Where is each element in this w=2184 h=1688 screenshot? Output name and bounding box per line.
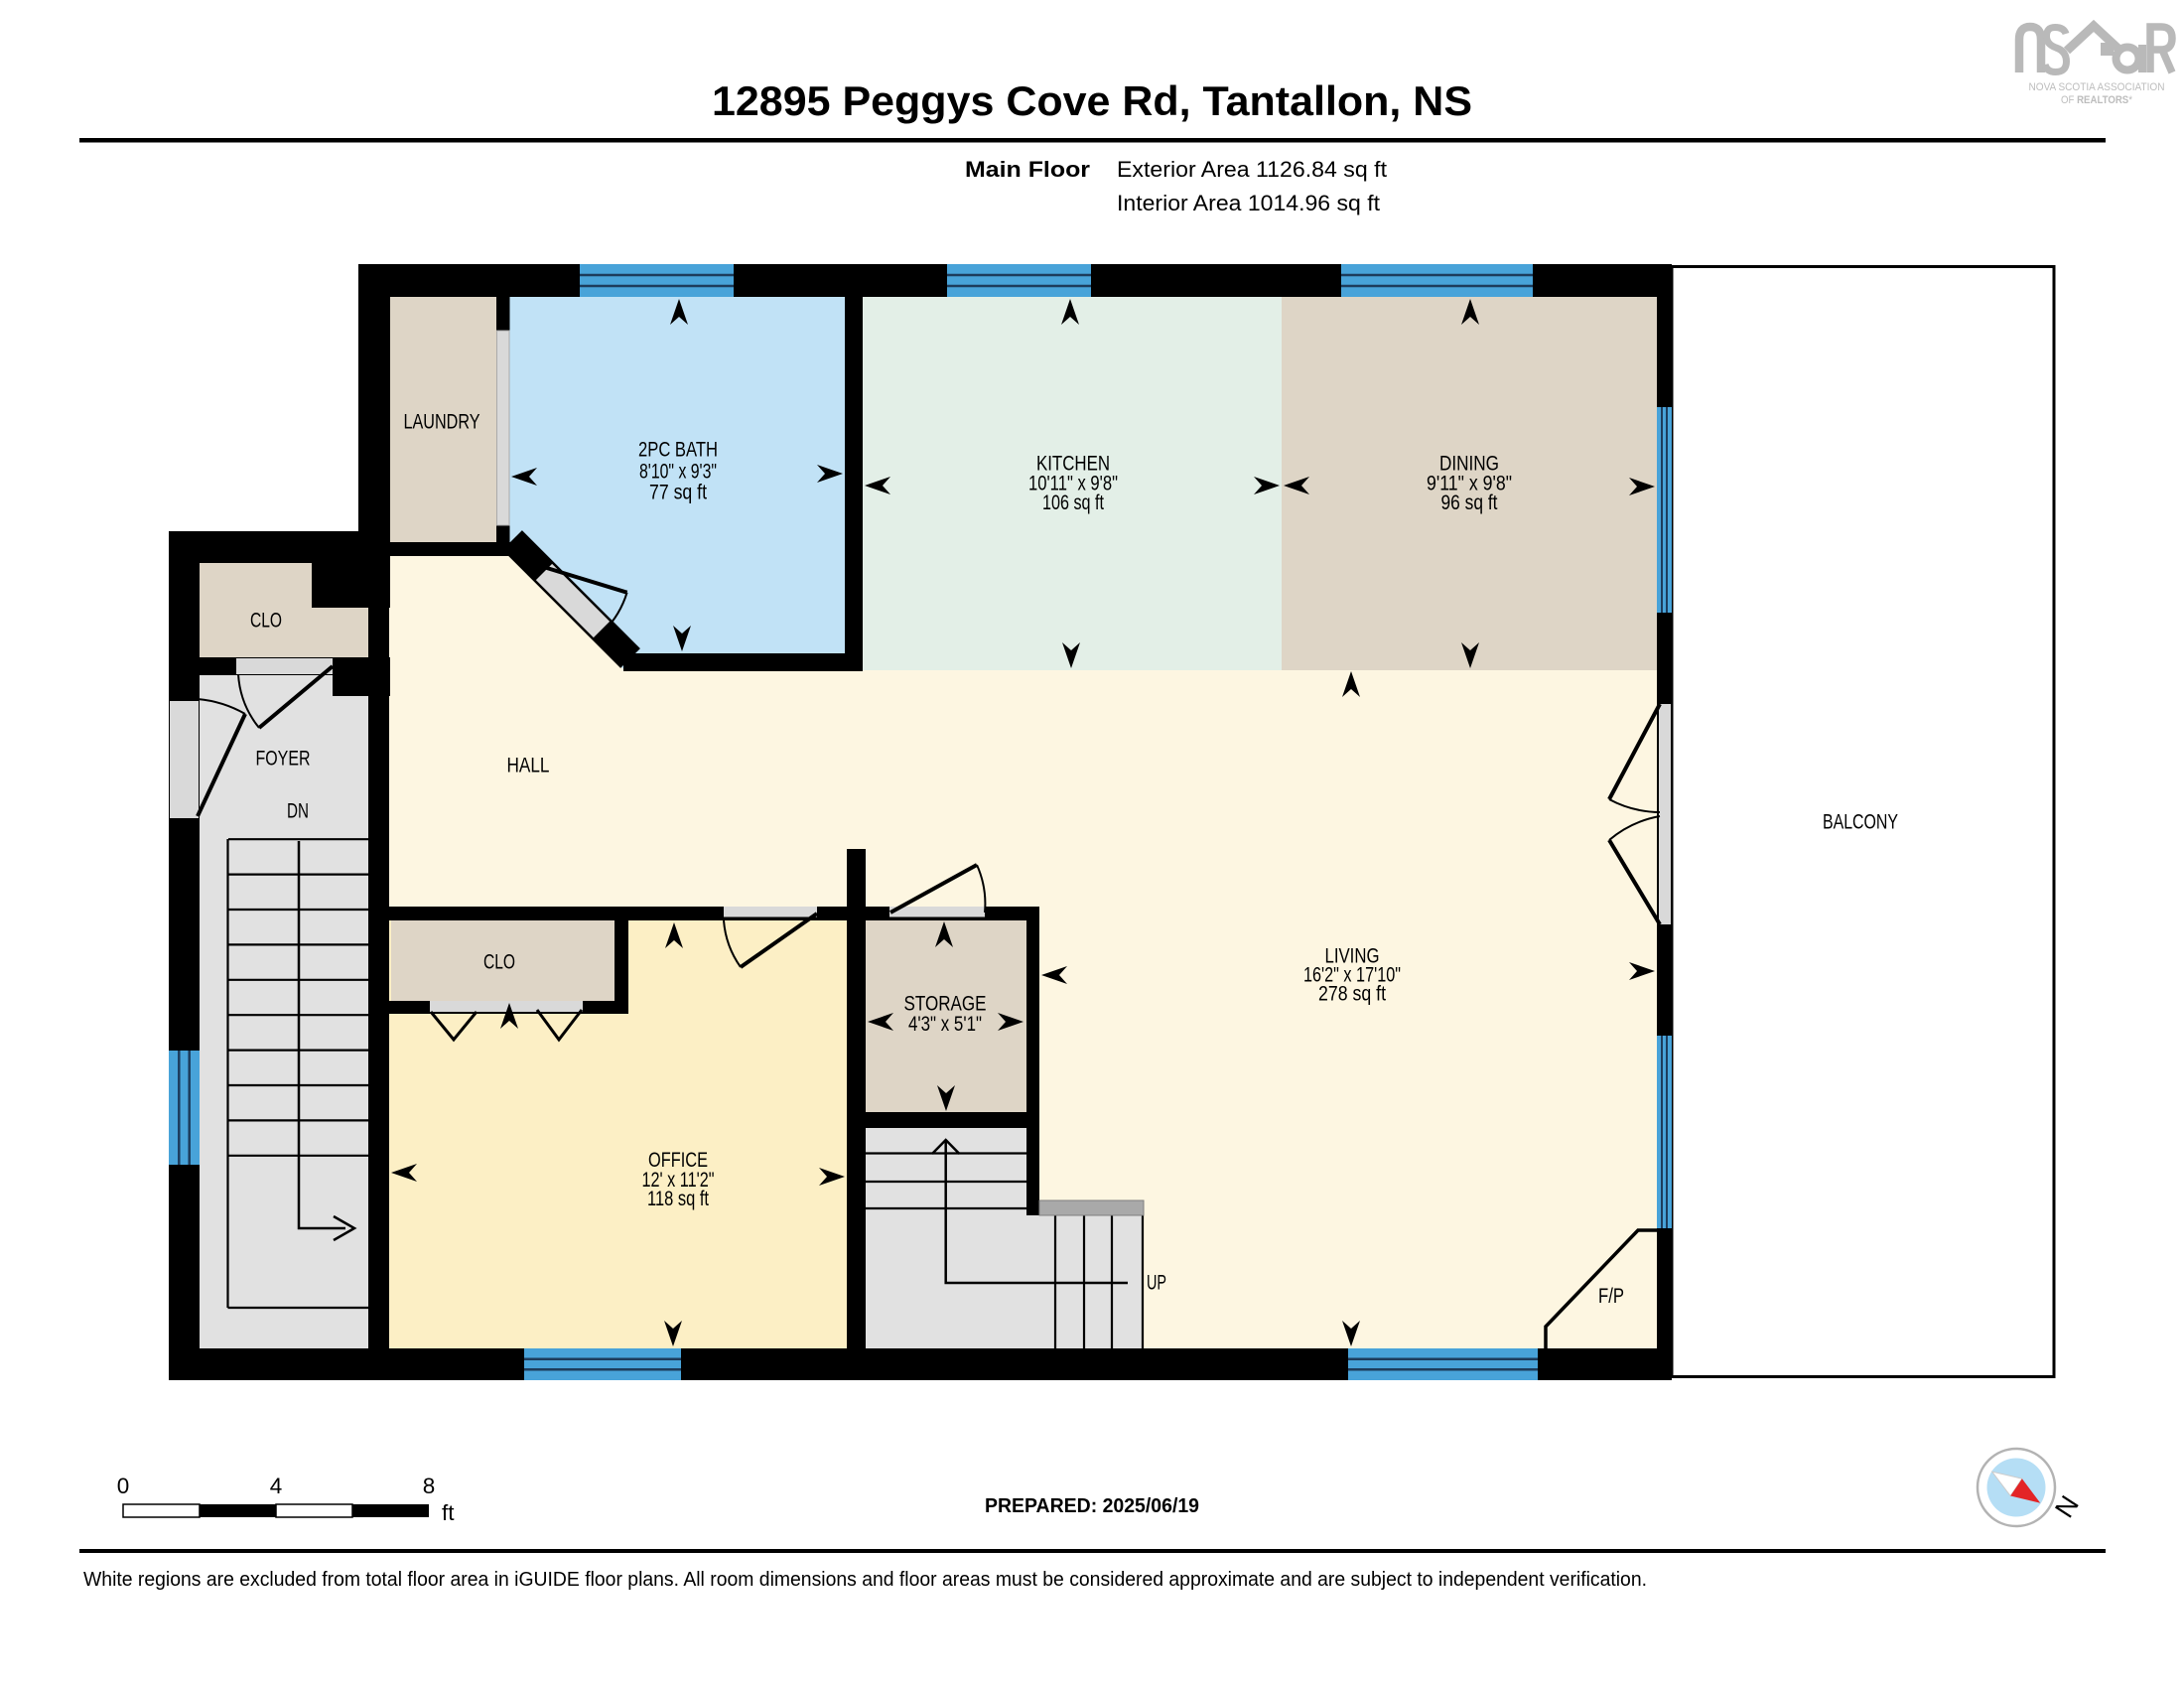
- svg-text:2PC BATH: 2PC BATH: [638, 438, 718, 462]
- svg-text:BALCONY: BALCONY: [1823, 810, 1898, 834]
- svg-text:HALL: HALL: [507, 754, 550, 777]
- svg-text:106 sq ft: 106 sq ft: [1042, 491, 1104, 514]
- svg-text:118 sq ft: 118 sq ft: [647, 1187, 709, 1210]
- svg-text:77 sq ft: 77 sq ft: [649, 481, 707, 504]
- svg-text:OF REALTORS*: OF REALTORS*: [2061, 94, 2133, 106]
- svg-text:ft: ft: [442, 1500, 455, 1525]
- svg-text:DN: DN: [287, 799, 309, 823]
- svg-text:FOYER: FOYER: [256, 747, 311, 771]
- svg-text:PREPARED: 2025/06/19: PREPARED: 2025/06/19: [985, 1494, 1199, 1517]
- svg-text:UP: UP: [1147, 1271, 1166, 1295]
- svg-text:12895 Peggys Cove Rd, Tantallo: 12895 Peggys Cove Rd, Tantallon, NS: [712, 77, 1472, 124]
- svg-text:0: 0: [117, 1474, 130, 1498]
- svg-text:96 sq ft: 96 sq ft: [1441, 491, 1498, 514]
- svg-text:CLO: CLO: [483, 950, 515, 974]
- svg-text:Interior Area 1014.96 sq ft: Interior Area 1014.96 sq ft: [1117, 191, 1381, 215]
- svg-text:F/P: F/P: [1598, 1284, 1624, 1308]
- svg-text:Exterior Area 1126.84 sq ft: Exterior Area 1126.84 sq ft: [1117, 157, 1388, 182]
- svg-text:4: 4: [270, 1474, 283, 1498]
- svg-text:CLO: CLO: [250, 609, 282, 633]
- svg-text:Main Floor: Main Floor: [965, 157, 1090, 182]
- svg-text:LAUNDRY: LAUNDRY: [404, 410, 480, 434]
- svg-text:NOVA SCOTIA ASSOCIATION: NOVA SCOTIA ASSOCIATION: [2029, 81, 2165, 93]
- svg-text:White regions are excluded fro: White regions are excluded from total fl…: [83, 1568, 1647, 1591]
- svg-text:4'3" x 5'1": 4'3" x 5'1": [908, 1012, 982, 1036]
- svg-text:278 sq ft: 278 sq ft: [1318, 982, 1386, 1006]
- svg-text:8: 8: [423, 1474, 436, 1498]
